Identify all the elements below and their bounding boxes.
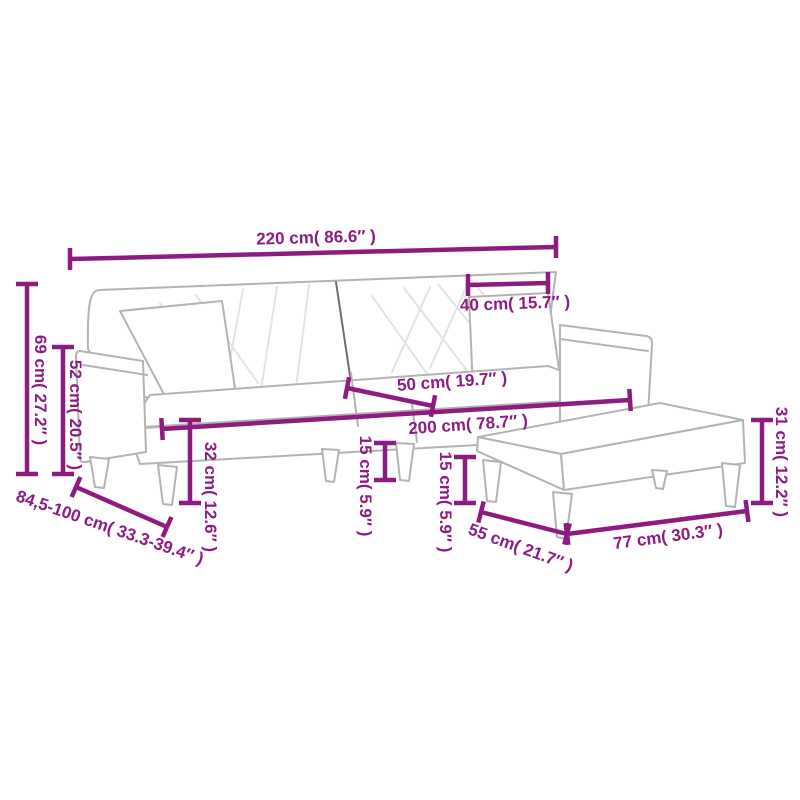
sofa-leg-middle: [322, 449, 339, 482]
footstool-leg-right: [722, 463, 740, 507]
dim-line-stool-leg-height: [454, 457, 476, 503]
dim-label-back-height: 69 cm( 27.2″ ): [31, 335, 50, 445]
dim-label-stool-height: 31 cm( 12.2″ ): [772, 407, 791, 517]
diagram-canvas: 220 cm( 86.6″ ) 40 cm( 15.7″ ) 69 cm( 27…: [0, 0, 800, 800]
dim-label-arm-height: 52 cm( 20.5″ ): [66, 360, 85, 470]
dim-line-stool-height: [751, 420, 773, 503]
dim-label-stool-leg-height: 15 cm( 5.9″ ): [436, 452, 455, 553]
left-armrest: [76, 351, 146, 462]
dim-label-sofa-leg-height: 15 cm( 5.9″ ): [356, 436, 375, 537]
dimension-diagram: 220 cm( 86.6″ ) 40 cm( 15.7″ ) 69 cm( 27…: [0, 0, 800, 800]
sofa-leg-left-inner: [158, 465, 177, 505]
sofa-leg-middle-right: [396, 443, 414, 481]
footstool-leg-back-middle: [652, 470, 667, 489]
dim-label-sofa-width: 220 cm( 86.6″ ): [256, 226, 376, 248]
sofa-leg-front-left: [90, 457, 109, 488]
footstool-leg-back-left: [483, 460, 501, 502]
dim-label-pillow-width: 40 cm( 15.7″ ): [460, 292, 571, 315]
dim-label-seat-height: 32 cm( 12.6″ ): [201, 442, 220, 552]
dim-label-depth-range: 84,5-100 cm( 33.3-39.4″ ): [14, 486, 207, 568]
